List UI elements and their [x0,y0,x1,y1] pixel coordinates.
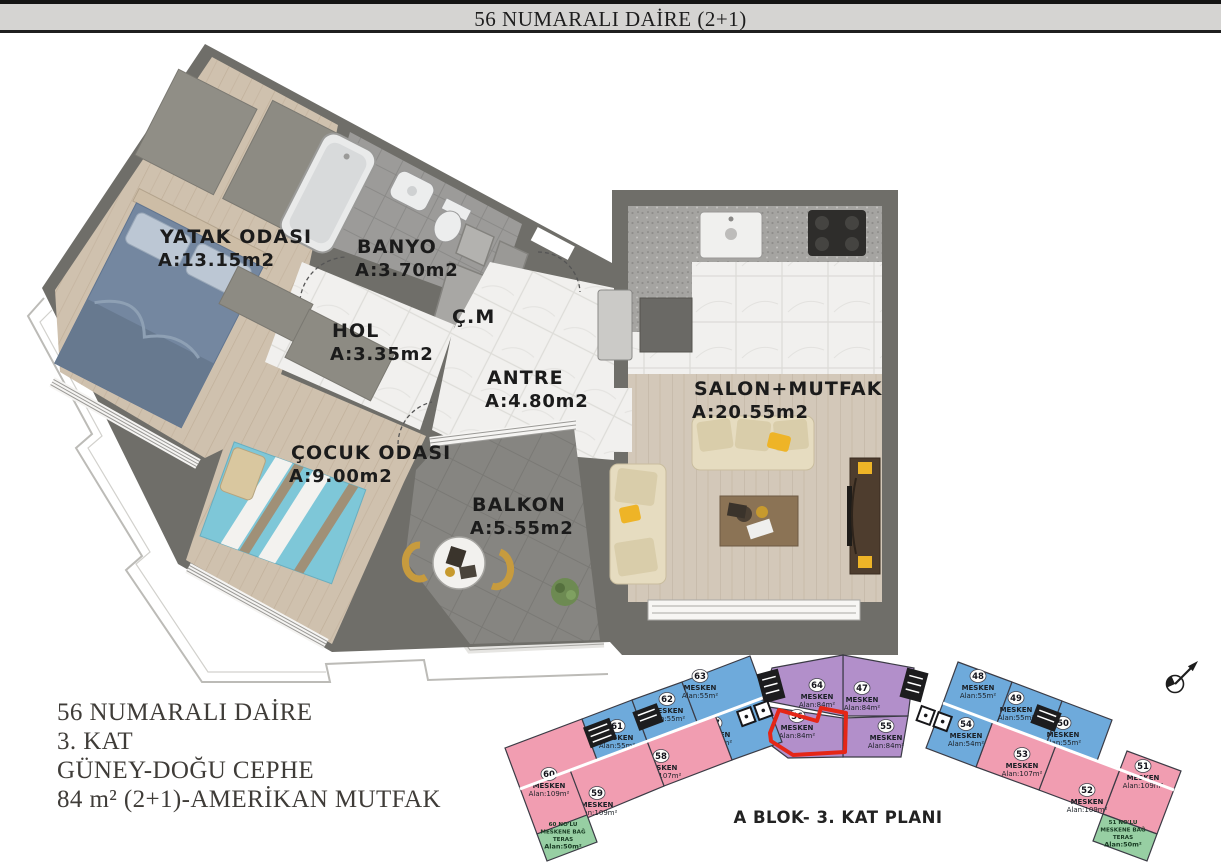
unit-number: 53 [1016,750,1028,760]
room-area-label: A:13.15m2 [158,250,275,271]
unit-number: 58 [655,752,667,762]
unit-area: Alan:55m² [960,692,997,700]
room-area-label: A:20.55m2 [692,402,809,423]
room-label: Ç.M [452,306,495,328]
keyplan-title: A BLOK- 3. KAT PLANI [733,808,942,827]
room-area-label: A:4.80m2 [485,391,589,412]
room-area-label: A:3.70m2 [355,260,459,281]
unit-number: 47 [856,684,868,694]
room-label: YATAK ODASI [159,226,312,248]
unit-number: 55 [880,722,892,732]
sofa-three-seat [692,416,814,470]
sofa-two-seat [610,464,666,584]
kitchen-floor [692,262,882,374]
terrace-label: Alan:50m² [1104,841,1142,849]
room-label: HOL [332,320,379,342]
cooktop [808,210,866,256]
keyplan: 47MESKENAlan:84m²48MESKENAlan:55m²49MESK… [505,655,1198,861]
info-line: 56 NUMARALI DAİRE [57,698,441,727]
unit-number: 52 [1081,786,1093,796]
unit-label: MESKEN [581,801,614,809]
window-salon [648,600,860,620]
room-label: ÇOCUK ODASI [291,442,451,464]
unit-label: MESKEN [962,684,995,692]
unit-area: Alan:109m² [529,790,570,798]
room-label: BALKON [472,494,566,516]
unit-area: Alan:84m² [844,704,881,712]
room-area-label: A:9.00m2 [289,466,393,487]
room-label: SALON+MUTFAK [694,378,883,400]
apartment-info: 56 NUMARALI DAİRE 3. KAT GÜNEY-DOĞU CEPH… [57,698,441,814]
info-line: GÜNEY-DOĞU CEPHE [57,756,441,785]
room-label: BANYO [357,236,437,258]
room-area-label: A:5.55m2 [470,518,574,539]
coffee-table [720,496,798,546]
unit-number: 62 [661,695,673,705]
unit-area: Alan:84m² [868,742,905,750]
unit-area: Alan:55m² [998,714,1035,722]
unit-area: Alan:54m² [948,740,985,748]
fridge [598,290,632,360]
north-compass-icon [1166,661,1198,693]
unit-number: 54 [960,720,972,730]
info-line: 3. KAT [57,727,441,756]
unit-number: 63 [694,672,706,682]
unit-label: MESKEN [1000,706,1033,714]
unit-label: MESKEN [684,684,717,692]
kitchen-sink [700,212,762,258]
unit-label: MESKEN [1006,762,1039,770]
room-label: ANTRE [487,367,564,389]
unit-label: MESKEN [950,732,983,740]
unit-label: MESKEN [846,696,879,704]
terrace-label: 51 NO'LU [1109,820,1138,826]
unit-label: MESKEN [781,724,814,732]
page: 56 NUMARALI DAİRE (2+1) [0,0,1221,864]
unit-area: Alan:109m² [1067,806,1108,814]
terrace-label: 60 NO'LU [549,822,578,828]
unit-label: MESKEN [1047,731,1080,739]
terrace-label: MESKENE BAĞ [1100,827,1146,834]
unit-label: MESKEN [801,693,834,701]
unit-number: 51 [1137,762,1149,772]
antre-salon-opening [608,388,632,452]
unit-number: 59 [591,789,603,799]
unit-number: 49 [1010,694,1022,704]
unit-area: Alan:84m² [779,732,816,740]
unit-number: 64 [811,681,823,691]
terrace-label: Alan:50m² [544,843,582,851]
info-line: 84 m² (2+1)-AMERİKAN MUTFAK [57,785,441,814]
kitchen-island [640,298,692,352]
plant [551,578,579,606]
tv-unit [847,458,880,574]
room-area-label: A:3.35m2 [330,344,434,365]
unit-label: MESKEN [870,734,903,742]
unit-area: Alan:107m² [1002,770,1043,778]
unit-label: MESKEN [1071,798,1104,806]
terrace-label: MESKENE BAĞ [540,829,586,836]
unit-number: 48 [972,672,984,682]
unit-area: Alan:55m² [682,692,719,700]
